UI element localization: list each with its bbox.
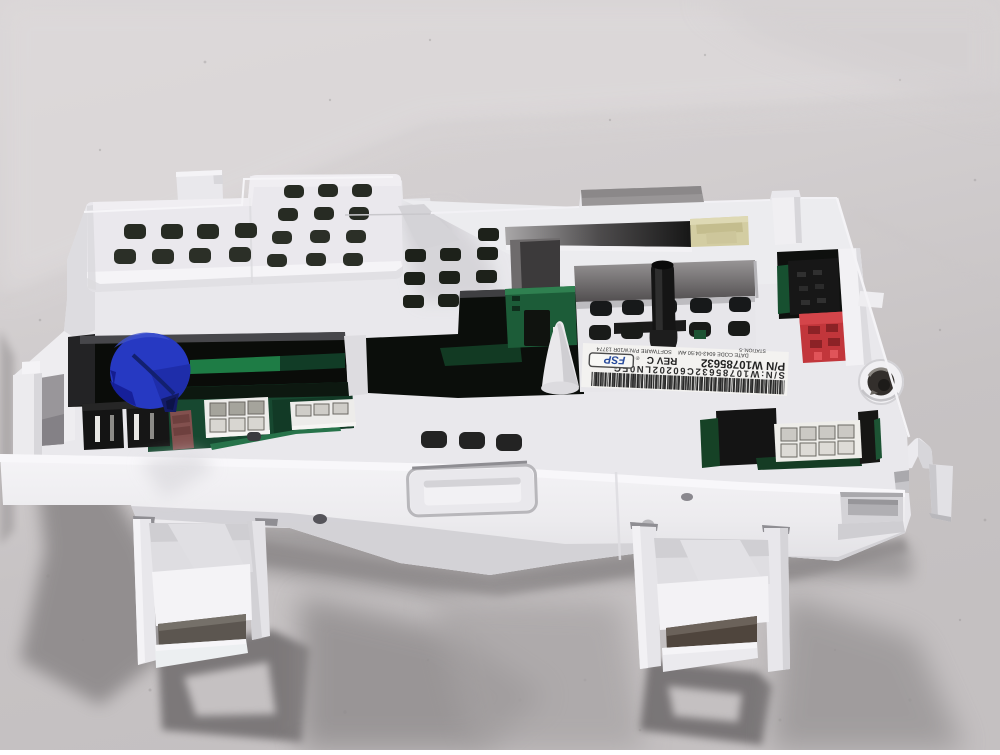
svg-text:®: ® xyxy=(635,354,639,361)
svg-text:REV C: REV C xyxy=(647,354,678,366)
svg-text:STATION:-5: STATION:-5 xyxy=(739,346,766,353)
svg-text:FSP: FSP xyxy=(603,353,626,366)
